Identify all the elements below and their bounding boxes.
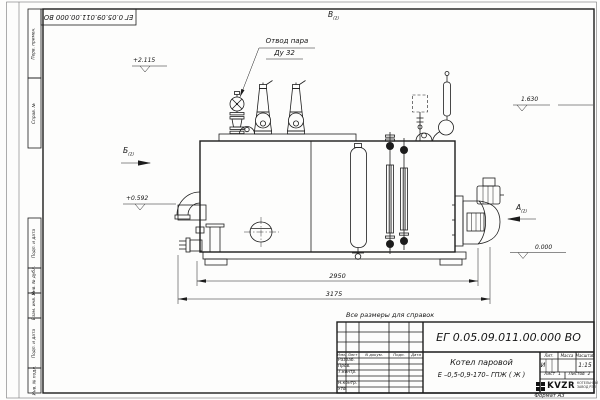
masshtab-header: Масштаб [576,352,594,359]
margin-label-inv-dubl: Инв. № дубл. [28,268,41,293]
row-prov: Пров. [338,365,351,369]
margin-label-perv-primen: Перв. примен. [28,9,41,78]
elevation-marks [123,66,593,259]
view-arrow-a [507,216,536,221]
view-marker-a: А(2) [516,204,527,214]
callout-du32: Ду 32 [266,50,303,57]
inverted-doc-number: ЕГ 0.05.09.011.00.000 ВО [41,9,136,25]
titleblock-doc-number: ЕГ 0.05.09.011.00.000 ВО [423,322,594,352]
margin-label-vzam-inv: Взам. инв. № [28,293,41,318]
col-docum: N докум. [359,352,389,358]
row-utv: Утв. [338,388,347,392]
margin-label-sprav-no: Справ. № [28,78,41,148]
kvzr-logo-text: KVZR [547,382,575,391]
drawing-sheet: ЕГ 0.05.09.011.00.000 ВО Перв. примен. С… [0,0,600,400]
lit-header: Лит. [540,352,558,359]
massa-header: Масса [558,352,576,359]
reference-note: Все размеры для справок [346,312,434,319]
elevation-0592: +0.592 [126,196,148,202]
titleblock-product-name: Котел паровой [423,356,540,370]
sheet-number: Лист1 [540,372,565,379]
elevation-1630: 1.630 [521,97,538,103]
massa-value [558,359,576,372]
safety-valve-2 [288,81,306,135]
water-column-vessel [351,144,367,260]
level-gauge-1 [386,132,395,254]
view-arrow-b [121,160,151,165]
kvzr-logo-subtext: КОТЕЛЬНЫЙ ЗАВОД РЭП [577,382,598,389]
elevation-0000: 0.000 [535,245,552,251]
boiler-body [200,134,466,265]
lifting-lug-left [240,127,255,135]
elevation-2115: +2.115 [133,58,155,64]
row-nkontr: Н.контр. [338,382,357,386]
dim-3175: 3175 [178,291,490,298]
kvzr-logo-icon [536,382,545,391]
lit-value: И [540,359,546,372]
col-podp: Подп. [389,352,409,358]
margin-label-podp-data-2: Подп. и дата [28,318,41,368]
margin-label-inv-podl: Инв. № подл. [28,368,41,393]
titleblock-product-type: Е –0,5-0,9-170– ГПЖ ( Ж ) [423,369,540,381]
margin-label-podp-data-1: Подп. и дата [28,218,41,268]
row-razrab: Разраб. [338,359,355,363]
lifting-lug-right [416,133,432,141]
dim-2950: 2950 [197,273,478,280]
sheets-total: Листов2 [565,372,594,379]
burner-unit [452,178,504,246]
masshtab-value: 1:15 [576,359,594,372]
level-gauge-2 [400,138,409,250]
view-marker-v: В(2) [328,11,339,21]
view-marker-b: Б(2) [123,147,134,157]
format-label: Формат А3 [505,394,594,399]
siphon-tube [433,72,454,142]
steam-valve [230,92,244,134]
safety-valve-1 [255,81,273,135]
company-logo: KVZR КОТЕЛЬНЫЙ ЗАВОД РЭП [540,379,594,393]
left-elbow-pipe [175,192,206,252]
manometer-fitting [413,95,428,141]
col-data: Дата [409,352,423,358]
row-tkontr: Т.контр. [338,371,357,375]
callout-steam-outlet: Отвод пара [259,38,315,45]
